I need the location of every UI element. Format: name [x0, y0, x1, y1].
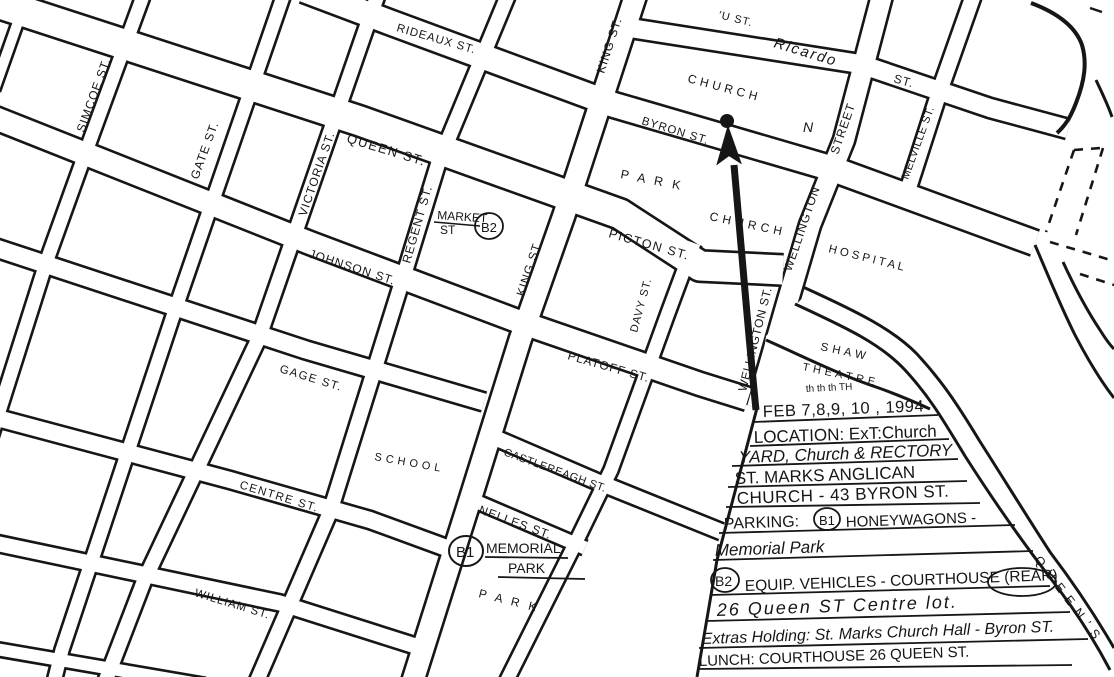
- svg-text:N: N: [803, 119, 814, 135]
- svg-text:ST: ST: [440, 223, 456, 237]
- svg-text:PARK: PARK: [508, 560, 546, 576]
- svg-text:B1: B1: [819, 513, 835, 528]
- svg-text:PARKING:: PARKING:: [724, 513, 800, 533]
- svg-text:Memorial Park: Memorial Park: [714, 537, 826, 560]
- svg-text:B2: B2: [481, 220, 497, 235]
- svg-text:B2: B2: [715, 573, 732, 589]
- svg-text:MEMORIAL.: MEMORIAL.: [486, 540, 565, 556]
- svg-text:B1: B1: [456, 544, 474, 561]
